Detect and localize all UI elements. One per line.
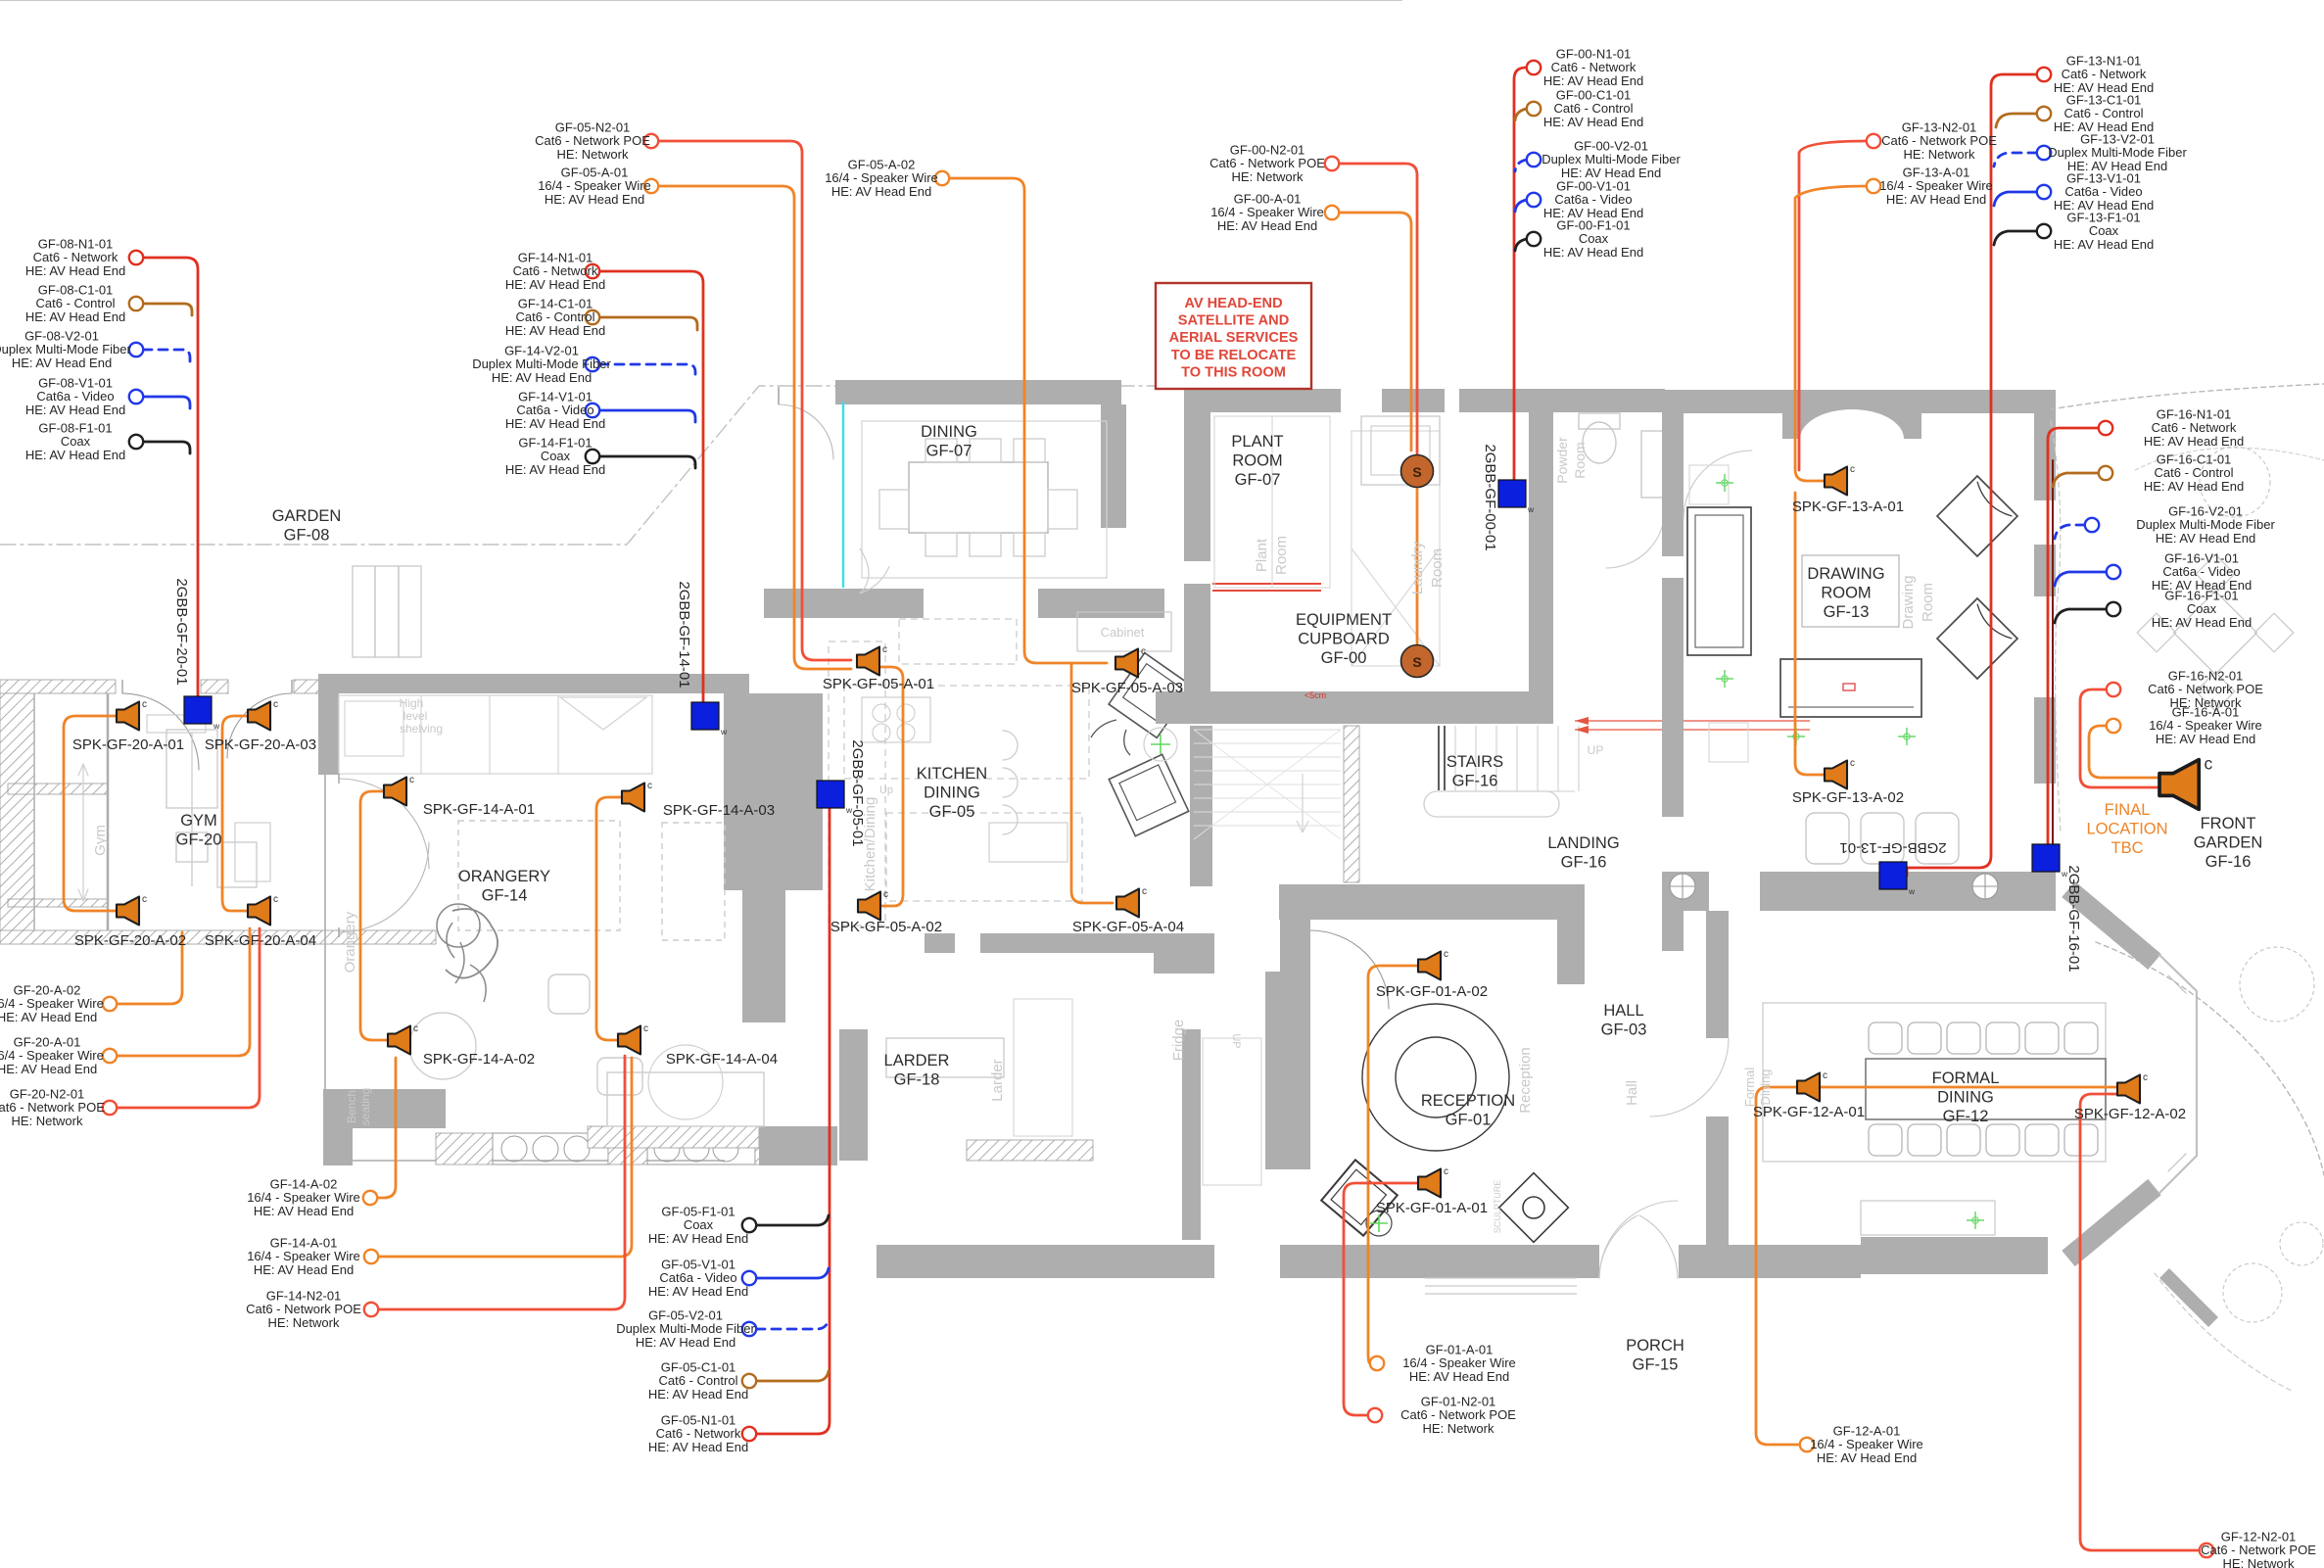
svg-text:DINING: DINING [921,423,977,441]
svg-text:GF-08: GF-08 [284,527,330,545]
svg-text:HE: AV Head End: HE: AV Head End [492,370,592,385]
svg-text:c: c [2205,753,2213,773]
svg-text:HE: AV Head End: HE: AV Head End [2156,732,2255,746]
svg-text:w: w [213,721,220,731]
svg-text:UP: UP [1588,743,1604,757]
svg-text:Up: Up [879,784,893,796]
svg-text:c: c [413,1023,418,1034]
svg-text:HE: AV Head End: HE: AV Head End [12,356,112,370]
svg-text:S: S [1412,654,1421,670]
svg-text:c: c [273,894,278,905]
svg-text:TBC: TBC [2111,839,2144,857]
svg-text:SPK-GF-14-A-04: SPK-GF-14-A-04 [666,1051,778,1068]
svg-text:c: c [883,889,888,900]
svg-text:HE: AV Head End: HE: AV Head End [505,277,605,292]
svg-text:HE: AV Head End: HE: AV Head End [505,323,605,338]
svg-text:AERIAL SERVICES: AERIAL SERVICES [1169,330,1299,346]
svg-text:2GBB-GF-20-01: 2GBB-GF-20-01 [173,578,190,685]
svg-text:HE: AV Head End: HE: AV Head End [2152,615,2252,630]
svg-text:HE: AV Head End: HE: AV Head End [254,1204,354,1218]
svg-text:FINAL: FINAL [2105,801,2151,819]
svg-text:Fridge: Fridge [1170,1020,1187,1062]
svg-text:shelving: shelving [400,722,443,736]
svg-text:LARDER: LARDER [884,1052,950,1069]
svg-text:GF-14: GF-14 [482,887,528,905]
svg-text:GF-12: GF-12 [1943,1108,1989,1125]
svg-text:HE: AV Head End: HE: AV Head End [636,1335,735,1350]
svg-text:HE: AV Head End: HE: AV Head End [648,1284,748,1299]
svg-text:SPK-GF-20-A-02: SPK-GF-20-A-02 [74,932,186,949]
svg-text:c: c [142,894,147,905]
svg-text:c: c [1142,886,1147,897]
svg-text:Drawing: Drawing [1900,575,1917,629]
svg-text:HE: AV Head End: HE: AV Head End [1561,166,1661,180]
svg-text:c: c [1444,1166,1448,1177]
svg-text:HE: AV Head End: HE: AV Head End [1409,1369,1509,1384]
svg-text:HE: AV Head End: HE: AV Head End [831,184,931,199]
svg-text:ROOM: ROOM [1232,452,1282,470]
svg-text:SPK-GF-14-A-02: SPK-GF-14-A-02 [423,1051,535,1068]
svg-text:SPK-GF-20-A-03: SPK-GF-20-A-03 [205,736,316,753]
svg-text:seating: seating [358,1088,372,1126]
svg-text:SPK-GF-13-A-02: SPK-GF-13-A-02 [1792,789,1904,806]
svg-text:SPK-GF-12-A-01: SPK-GF-12-A-01 [1753,1104,1865,1120]
svg-text:Kitchen/Dining: Kitchen/Dining [862,797,878,892]
svg-text:Room: Room [1920,583,1936,622]
svg-text:DINING: DINING [924,784,980,802]
svg-text:Orangery: Orangery [342,911,358,973]
svg-text:Formal: Formal [1742,1068,1757,1108]
svg-text:HALL: HALL [1603,1002,1643,1020]
svg-text:SPK-GF-05-A-02: SPK-GF-05-A-02 [830,919,942,935]
svg-text:GF-16: GF-16 [1452,773,1498,790]
svg-text:HE: Network: HE: Network [268,1315,340,1330]
svg-text:HE: AV Head End: HE: AV Head End [2054,237,2154,252]
svg-text:HE: AV Head End: HE: AV Head End [1217,218,1317,233]
svg-text:HE: Network: HE: Network [1423,1421,1494,1436]
svg-text:GF-05: GF-05 [929,803,975,821]
svg-text:GF-18: GF-18 [894,1071,940,1089]
svg-text:c: c [1850,464,1855,475]
svg-text:Reception: Reception [1517,1047,1534,1114]
svg-text:HE: AV Head End: HE: AV Head End [0,1062,97,1076]
svg-text:DRAWING: DRAWING [1807,565,1884,583]
svg-text:c: c [1850,758,1855,769]
svg-text:Powder: Powder [1554,437,1570,484]
svg-text:<5cm: <5cm [1304,690,1326,700]
svg-text:c: c [1444,949,1448,960]
svg-text:Cabinet: Cabinet [1101,625,1145,640]
svg-text:HE: Network: HE: Network [1904,147,1975,162]
svg-text:Room: Room [1429,548,1446,588]
svg-text:HE: AV Head End: HE: AV Head End [648,1440,748,1454]
svg-text:c: c [273,699,278,710]
svg-text:GF-16: GF-16 [1561,854,1607,872]
svg-text:SPK-GF-13-A-01: SPK-GF-13-A-01 [1792,499,1904,515]
svg-text:GYM: GYM [180,812,217,830]
svg-text:GF-03: GF-03 [1601,1022,1647,1039]
svg-text:HE: AV Head End: HE: AV Head End [25,448,125,462]
svg-text:c: c [1823,1070,1827,1081]
svg-text:HE: AV Head End: HE: AV Head End [505,416,605,431]
svg-text:FRONT: FRONT [2201,815,2256,832]
svg-text:Hall: Hall [1624,1080,1640,1106]
svg-text:c: c [882,644,887,655]
svg-text:ORANGERY: ORANGERY [458,868,550,885]
svg-text:UP: UP [1230,1033,1242,1048]
svg-text:ROOM: ROOM [1821,585,1871,602]
svg-text:2GBB-GF-00-01: 2GBB-GF-00-01 [1482,444,1498,550]
svg-text:Larder: Larder [989,1059,1006,1101]
svg-text:HE: AV Head End: HE: AV Head End [1543,115,1643,129]
svg-text:HE: Network: HE: Network [2223,1556,2295,1568]
svg-text:w: w [720,727,728,736]
svg-text:TO THIS ROOM: TO THIS ROOM [1181,364,1286,380]
svg-text:c: c [643,1023,648,1034]
svg-text:HE: AV Head End: HE: AV Head End [2144,479,2244,494]
svg-text:Dining: Dining [1758,1069,1773,1106]
svg-text:STAIRS: STAIRS [1447,753,1503,771]
svg-text:AV HEAD-END: AV HEAD-END [1184,296,1282,311]
svg-text:HE: AV Head End: HE: AV Head End [1817,1450,1917,1465]
svg-text:GF-01: GF-01 [1446,1112,1492,1129]
svg-text:FORMAL: FORMAL [1932,1069,2000,1087]
svg-text:HE: Network: HE: Network [1232,169,1304,184]
svg-text:S: S [1412,464,1421,480]
svg-text:HE: AV Head End: HE: AV Head End [2144,434,2244,449]
svg-text:HE: AV Head End: HE: AV Head End [254,1262,354,1277]
svg-text:HE: AV Head End: HE: AV Head End [25,403,125,417]
svg-text:EQUIPMENT: EQUIPMENT [1296,611,1392,629]
svg-text:GF-13: GF-13 [1824,603,1870,621]
svg-text:LOCATION: LOCATION [2086,821,2167,838]
svg-text:HE: AV Head End: HE: AV Head End [648,1387,748,1402]
svg-text:Plant: Plant [1254,538,1270,572]
svg-text:SPK-GF-05-A-03: SPK-GF-05-A-03 [1071,680,1183,696]
svg-text:SPK-GF-14-A-03: SPK-GF-14-A-03 [663,802,775,819]
svg-text:HE: AV Head End: HE: AV Head End [1886,192,1986,207]
svg-text:HE: AV Head End: HE: AV Head End [25,263,125,278]
svg-text:Laundry: Laundry [1409,541,1426,594]
svg-text:SPK-GF-14-A-01: SPK-GF-14-A-01 [423,801,535,818]
svg-text:HE: AV Head End: HE: AV Head End [505,462,605,477]
svg-text:GARDEN: GARDEN [2194,834,2263,852]
svg-text:SPK-GF-12-A-02: SPK-GF-12-A-02 [2074,1106,2186,1122]
svg-text:GF-07: GF-07 [1235,471,1281,489]
svg-text:SCULPTURE: SCULPTURE [1493,1180,1502,1234]
svg-text:c: c [2143,1072,2148,1083]
svg-text:HE: AV Head End: HE: AV Head End [0,1010,97,1024]
svg-text:GF-20: GF-20 [176,832,222,849]
svg-text:GARDEN: GARDEN [272,507,342,525]
svg-text:Bench: Bench [345,1090,358,1123]
svg-text:HE: Network: HE: Network [12,1114,83,1128]
svg-text:SPK-GF-20-A-04: SPK-GF-20-A-04 [205,932,316,949]
svg-text:HE: Network: HE: Network [557,147,629,162]
svg-text:HE: AV Head End: HE: AV Head End [1543,73,1643,88]
svg-text:GF-07: GF-07 [926,443,972,460]
svg-text:Gym: Gym [92,825,109,856]
svg-text:2GBB-GF-13-01: 2GBB-GF-13-01 [1839,839,1946,856]
svg-text:RECEPTION: RECEPTION [1421,1092,1515,1110]
svg-text:GF-00: GF-00 [1321,649,1367,667]
svg-text:GF-16: GF-16 [2205,853,2252,871]
svg-text:GF-15: GF-15 [1633,1356,1679,1374]
svg-text:SATELLITE AND: SATELLITE AND [1178,313,1290,329]
svg-text:CUPBOARD: CUPBOARD [1298,631,1390,648]
svg-text:PORCH: PORCH [1626,1337,1684,1354]
svg-text:2GBB-GF-16-01: 2GBB-GF-16-01 [2065,865,2082,972]
svg-text:HE: AV Head End: HE: AV Head End [25,309,125,324]
svg-text:2GBB-GF-14-01: 2GBB-GF-14-01 [676,581,692,688]
svg-text:Room: Room [1572,442,1588,478]
svg-text:SPK-GF-01-A-02: SPK-GF-01-A-02 [1376,983,1488,1000]
svg-text:LANDING: LANDING [1547,834,1619,852]
svg-text:HE: AV Head End: HE: AV Head End [1543,245,1643,260]
svg-text:KITCHEN: KITCHEN [917,765,987,783]
svg-text:c: c [647,781,652,791]
svg-text:Room: Room [1273,536,1290,575]
svg-text:HE: AV Head End: HE: AV Head End [2156,531,2255,546]
svg-text:TO BE RELOCATE: TO BE RELOCATE [1171,348,1297,363]
svg-text:HE: AV Head End: HE: AV Head End [648,1231,748,1246]
svg-text:c: c [409,775,414,785]
svg-text:c: c [1141,646,1146,657]
svg-text:PLANT: PLANT [1231,433,1283,451]
svg-text:w: w [1527,504,1535,514]
svg-text:DINING: DINING [1937,1089,1994,1107]
svg-text:High: High [400,696,424,710]
svg-text:c: c [142,699,147,710]
svg-text:w: w [1908,886,1916,896]
svg-text:HE: AV Head End: HE: AV Head End [545,192,644,207]
svg-text:level: level [403,709,428,723]
svg-text:SPK-GF-01-A-01: SPK-GF-01-A-01 [1376,1200,1488,1216]
svg-text:SPK-GF-20-A-01: SPK-GF-20-A-01 [72,736,184,753]
svg-text:SPK-GF-05-A-04: SPK-GF-05-A-04 [1072,919,1184,935]
svg-text:SPK-GF-05-A-01: SPK-GF-05-A-01 [823,676,934,692]
